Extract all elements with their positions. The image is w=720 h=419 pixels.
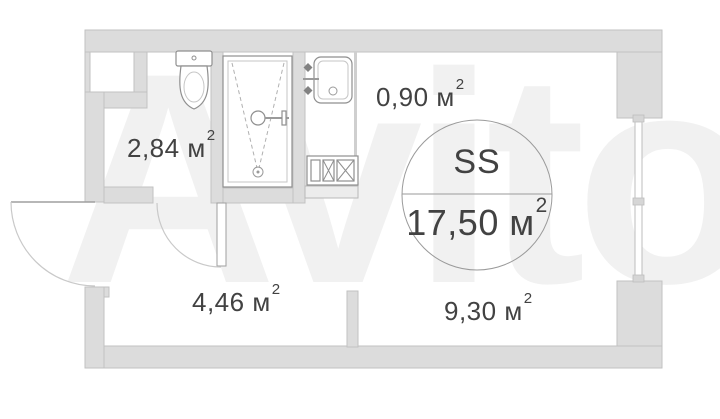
window-mullion-top bbox=[633, 115, 644, 122]
hallway-area-sup: 2 bbox=[272, 281, 281, 298]
stove-fixture bbox=[307, 156, 358, 185]
kitchen-niche-area-value: 0,90 м bbox=[376, 82, 455, 112]
sink-basin-outer bbox=[314, 57, 352, 103]
bathroom-door-swing-arc bbox=[157, 203, 221, 267]
kitchen-niche-bottom-bar bbox=[305, 186, 358, 198]
unit-area-sup: 2 bbox=[536, 194, 548, 217]
window-mullion-middle bbox=[633, 198, 644, 205]
kitchen-niche-area-sup: 2 bbox=[456, 76, 465, 93]
unit-area-value: 17,50 м bbox=[406, 202, 534, 243]
shower-fixture bbox=[223, 56, 292, 187]
living-area-sup: 2 bbox=[524, 290, 533, 307]
entry-door bbox=[11, 202, 95, 286]
stove-cell-left bbox=[311, 160, 320, 181]
sink-fixture bbox=[303, 57, 352, 103]
window-mullion-bottom bbox=[633, 275, 644, 282]
wall-top bbox=[85, 30, 662, 52]
shaft-wall-bottom bbox=[104, 92, 147, 108]
wall-left-thin-at-shaft bbox=[85, 52, 90, 92]
wall-bottom bbox=[85, 346, 662, 368]
window bbox=[633, 115, 644, 282]
bathroom-door bbox=[157, 203, 226, 267]
bathroom-area-value: 2,84 м bbox=[127, 133, 206, 163]
bathroom-door-leaf bbox=[217, 203, 226, 266]
shower-wall-right bbox=[293, 52, 305, 203]
shower-drain-center bbox=[257, 171, 260, 174]
unit-type-label: SS bbox=[427, 143, 527, 182]
wall-left-upper bbox=[85, 92, 104, 202]
hallway-partition bbox=[347, 291, 358, 347]
toilet-tank bbox=[176, 51, 212, 66]
shaft-wall-right bbox=[134, 52, 147, 92]
shower-mixer-bracket bbox=[282, 111, 286, 125]
entry-door-swing-arc bbox=[11, 202, 95, 286]
entry-door-jamb-bottom bbox=[104, 287, 109, 297]
shower-wall-under bbox=[223, 188, 293, 203]
bathroom-area-sup: 2 bbox=[207, 127, 216, 144]
unit-area-label: 17,50 м2 bbox=[392, 202, 562, 244]
toilet-fixture bbox=[176, 51, 212, 109]
wall-left-lower bbox=[85, 287, 104, 368]
living-area-value: 9,30 м bbox=[444, 296, 523, 326]
living-area-label: 9,30 м2 bbox=[444, 296, 533, 327]
hallway-area-label: 4,46 м2 bbox=[192, 287, 281, 318]
bathroom-area-label: 2,84 м2 bbox=[127, 133, 216, 164]
wall-right-upper bbox=[617, 52, 662, 118]
kitchen-niche-area-label: 0,90 м2 bbox=[376, 82, 465, 113]
floor-plan: Avito bbox=[0, 0, 720, 419]
hallway-area-value: 4,46 м bbox=[192, 287, 271, 317]
shower-mixer bbox=[251, 111, 265, 125]
floor-plan-drawing bbox=[0, 0, 720, 419]
bathroom-wall-bottom bbox=[104, 187, 153, 203]
